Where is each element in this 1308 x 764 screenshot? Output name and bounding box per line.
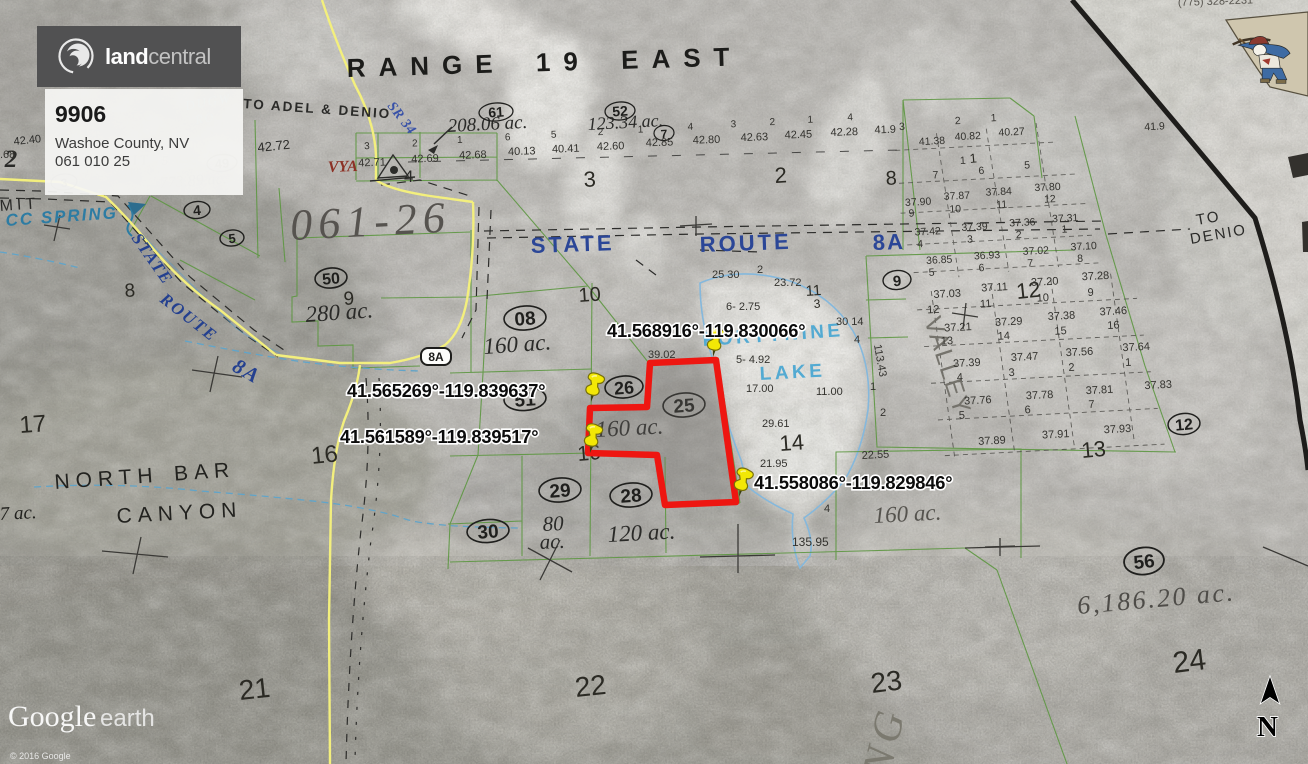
svg-text:10: 10 xyxy=(578,283,602,306)
svg-text:10: 10 xyxy=(1036,292,1049,305)
svg-text:1: 1 xyxy=(1125,357,1132,369)
svg-text:7: 7 xyxy=(1088,399,1095,411)
svg-text:11.00: 11.00 xyxy=(816,386,843,398)
svg-text:37.76: 37.76 xyxy=(964,394,992,407)
svg-text:37.80: 37.80 xyxy=(1034,181,1061,194)
svg-text:37.89: 37.89 xyxy=(978,434,1006,447)
svg-text:3: 3 xyxy=(967,233,974,245)
svg-text:37.56: 37.56 xyxy=(1065,346,1093,359)
svg-text:8: 8 xyxy=(1077,253,1084,265)
svg-text:14: 14 xyxy=(779,429,805,456)
svg-text:280 ac.: 280 ac. xyxy=(305,297,374,327)
svg-text:12: 12 xyxy=(927,304,940,317)
svg-text:42.71: 42.71 xyxy=(358,156,386,169)
svg-text:3: 3 xyxy=(1008,367,1015,379)
svg-text:50: 50 xyxy=(322,270,341,288)
svg-text:37.46: 37.46 xyxy=(1099,305,1127,318)
svg-text:13: 13 xyxy=(1080,436,1107,463)
svg-text:5: 5 xyxy=(928,267,935,279)
svg-text:11: 11 xyxy=(996,199,1008,212)
svg-text:37.39: 37.39 xyxy=(953,357,981,370)
svg-text:160 ac.: 160 ac. xyxy=(873,499,942,528)
svg-text:4: 4 xyxy=(687,122,693,133)
svg-text:4: 4 xyxy=(854,334,860,346)
svg-text:N: N xyxy=(1257,711,1278,743)
svg-text:37.11: 37.11 xyxy=(981,281,1008,294)
svg-text:135.95: 135.95 xyxy=(792,535,829,549)
svg-text:37.38: 37.38 xyxy=(1047,310,1075,323)
svg-text:1: 1 xyxy=(638,124,644,135)
svg-text:7: 7 xyxy=(932,169,939,181)
svg-text:37.64: 37.64 xyxy=(1122,341,1150,354)
svg-text:landcentral: landcentral xyxy=(105,44,211,69)
svg-text:37.39: 37.39 xyxy=(961,221,988,234)
svg-text:37.91: 37.91 xyxy=(1042,428,1070,441)
svg-text:4: 4 xyxy=(824,503,830,515)
svg-text:2: 2 xyxy=(774,162,788,188)
svg-text:2: 2 xyxy=(1068,362,1075,374)
svg-text:41.9: 41.9 xyxy=(1144,120,1165,133)
svg-text:VYA: VYA xyxy=(328,158,359,176)
svg-text:37.78: 37.78 xyxy=(1026,389,1054,402)
svg-text:1: 1 xyxy=(990,112,997,124)
svg-text:42.80: 42.80 xyxy=(693,134,721,147)
svg-text:37.20: 37.20 xyxy=(1031,275,1059,288)
svg-text:1: 1 xyxy=(1061,224,1068,236)
svg-text:6: 6 xyxy=(505,132,511,143)
svg-text:7 ac.: 7 ac. xyxy=(0,502,37,525)
svg-text:40.82: 40.82 xyxy=(954,130,981,143)
svg-text:40.13: 40.13 xyxy=(508,145,536,158)
svg-text:15: 15 xyxy=(1054,325,1067,338)
svg-text:30 14: 30 14 xyxy=(836,316,864,328)
svg-text:12: 12 xyxy=(1044,193,1056,206)
svg-text:3: 3 xyxy=(730,119,736,130)
svg-text:37.42: 37.42 xyxy=(914,225,941,238)
svg-text:17: 17 xyxy=(19,410,48,439)
svg-text:42.45: 42.45 xyxy=(784,129,812,142)
svg-text:5: 5 xyxy=(551,130,557,141)
svg-text:41.38: 41.38 xyxy=(919,135,946,148)
svg-text:25 30: 25 30 xyxy=(712,269,740,281)
svg-text:6: 6 xyxy=(978,165,985,177)
svg-text:2: 2 xyxy=(757,264,763,276)
svg-text:120 ac.: 120 ac. xyxy=(607,518,676,547)
svg-text:.68: .68 xyxy=(0,149,15,161)
svg-text:9906: 9906 xyxy=(55,101,106,127)
svg-text:160 ac.: 160 ac. xyxy=(483,329,552,359)
svg-text:13: 13 xyxy=(941,335,954,348)
svg-text:29: 29 xyxy=(549,480,572,502)
svg-text:2: 2 xyxy=(1016,229,1023,241)
svg-text:6- 2.75: 6- 2.75 xyxy=(726,301,760,313)
svg-text:ROUTE: ROUTE xyxy=(699,229,792,257)
svg-text:16: 16 xyxy=(1107,319,1120,332)
svg-text:Washoe County, NV: Washoe County, NV xyxy=(55,135,189,152)
svg-text:2: 2 xyxy=(769,117,775,128)
svg-text:37.83: 37.83 xyxy=(1144,379,1172,392)
svg-text:9: 9 xyxy=(908,207,915,219)
svg-text:22.55: 22.55 xyxy=(861,449,889,462)
svg-text:1: 1 xyxy=(969,150,978,166)
svg-text:2: 2 xyxy=(412,138,418,149)
svg-text:5: 5 xyxy=(958,410,965,422)
svg-text:earth: earth xyxy=(100,705,155,732)
svg-text:1: 1 xyxy=(870,381,876,393)
svg-text:1: 1 xyxy=(807,115,813,126)
svg-text:5: 5 xyxy=(228,231,237,247)
svg-text:5: 5 xyxy=(1024,159,1031,171)
svg-text:28: 28 xyxy=(620,485,643,507)
svg-text:37.84: 37.84 xyxy=(985,185,1012,198)
svg-text:42.60: 42.60 xyxy=(597,140,625,153)
svg-text:21: 21 xyxy=(237,672,271,706)
svg-text:41.568916°-119.830066°: 41.568916°-119.830066° xyxy=(607,320,805,341)
svg-text:5- 4.92: 5- 4.92 xyxy=(736,354,770,366)
svg-text:42.68: 42.68 xyxy=(459,149,487,162)
svg-text:37.10: 37.10 xyxy=(1070,240,1097,253)
svg-text:37.21: 37.21 xyxy=(944,321,972,334)
svg-text:41.9: 41.9 xyxy=(874,124,896,137)
svg-text:37.87: 37.87 xyxy=(943,190,970,203)
svg-text:26: 26 xyxy=(613,377,634,398)
svg-text:3: 3 xyxy=(364,141,370,152)
svg-text:42.63: 42.63 xyxy=(740,131,768,144)
svg-text:37.93: 37.93 xyxy=(1103,423,1131,436)
svg-text:3: 3 xyxy=(813,297,821,311)
svg-text:3: 3 xyxy=(899,121,906,133)
svg-text:40.41: 40.41 xyxy=(552,143,580,156)
svg-text:14: 14 xyxy=(997,330,1010,343)
svg-text:1: 1 xyxy=(457,135,463,146)
svg-text:Google: Google xyxy=(8,700,96,733)
svg-text:37.02: 37.02 xyxy=(1022,245,1049,258)
svg-text:42.28: 42.28 xyxy=(830,126,858,139)
svg-text:12: 12 xyxy=(1175,416,1194,434)
svg-text:21.95: 21.95 xyxy=(760,458,788,470)
svg-text:8: 8 xyxy=(885,167,897,190)
svg-text:37.03: 37.03 xyxy=(933,288,961,301)
svg-text:08: 08 xyxy=(514,308,537,330)
svg-text:11: 11 xyxy=(980,298,992,311)
svg-text:40.27: 40.27 xyxy=(998,126,1025,139)
svg-text:61: 61 xyxy=(488,103,505,120)
svg-text:41.565269°-119.839637°: 41.565269°-119.839637° xyxy=(347,380,545,401)
svg-text:30: 30 xyxy=(477,521,500,543)
svg-text:6: 6 xyxy=(1024,404,1031,416)
svg-text:MIT: MIT xyxy=(0,195,40,215)
svg-text:24: 24 xyxy=(1171,643,1208,680)
svg-text:2: 2 xyxy=(598,127,604,138)
svg-text:23.72: 23.72 xyxy=(774,277,802,289)
svg-text:42.85: 42.85 xyxy=(646,136,674,149)
svg-text:52: 52 xyxy=(612,102,629,119)
svg-text:2: 2 xyxy=(955,115,962,127)
svg-text:© 2016 Google: © 2016 Google xyxy=(10,751,71,761)
svg-text:4: 4 xyxy=(917,238,924,250)
svg-text:4: 4 xyxy=(404,167,413,186)
svg-text:4: 4 xyxy=(956,372,963,384)
svg-text:37.47: 37.47 xyxy=(1011,351,1039,364)
svg-text:9: 9 xyxy=(343,288,355,310)
svg-text:4: 4 xyxy=(847,112,853,123)
svg-text:16: 16 xyxy=(310,440,339,470)
svg-text:56: 56 xyxy=(1133,551,1156,574)
svg-text:ac.: ac. xyxy=(539,529,565,554)
svg-text:36.85: 36.85 xyxy=(926,254,953,267)
svg-text:17.00: 17.00 xyxy=(746,383,774,395)
svg-text:37.36: 37.36 xyxy=(1009,216,1036,229)
svg-text:29.61: 29.61 xyxy=(762,418,790,430)
svg-text:9: 9 xyxy=(892,273,902,291)
svg-text:3: 3 xyxy=(583,166,597,192)
svg-text:061-26: 061-26 xyxy=(289,193,452,250)
svg-text:36.93: 36.93 xyxy=(974,249,1001,262)
svg-text:6: 6 xyxy=(978,262,985,274)
svg-text:42.69: 42.69 xyxy=(411,153,439,166)
svg-text:061 010 25: 061 010 25 xyxy=(55,153,130,170)
svg-text:8A: 8A xyxy=(428,350,444,364)
svg-text:9: 9 xyxy=(1087,287,1094,299)
svg-text:37.29: 37.29 xyxy=(995,315,1023,328)
svg-text:8: 8 xyxy=(124,280,136,302)
svg-text:22: 22 xyxy=(573,669,607,703)
svg-text:37.81: 37.81 xyxy=(1085,384,1113,397)
svg-text:41.561589°-119.839517°: 41.561589°-119.839517° xyxy=(340,426,538,447)
svg-text:8A: 8A xyxy=(872,229,905,255)
svg-text:2: 2 xyxy=(880,407,886,419)
svg-text:4: 4 xyxy=(192,202,201,219)
svg-text:STATE: STATE xyxy=(530,230,615,258)
svg-text:23: 23 xyxy=(869,664,904,699)
svg-text:1: 1 xyxy=(960,155,967,167)
svg-text:41.558086°-119.829846°: 41.558086°-119.829846° xyxy=(754,472,952,493)
svg-text:10: 10 xyxy=(949,203,961,216)
svg-text:7: 7 xyxy=(1027,257,1034,269)
svg-text:37.28: 37.28 xyxy=(1081,270,1109,283)
